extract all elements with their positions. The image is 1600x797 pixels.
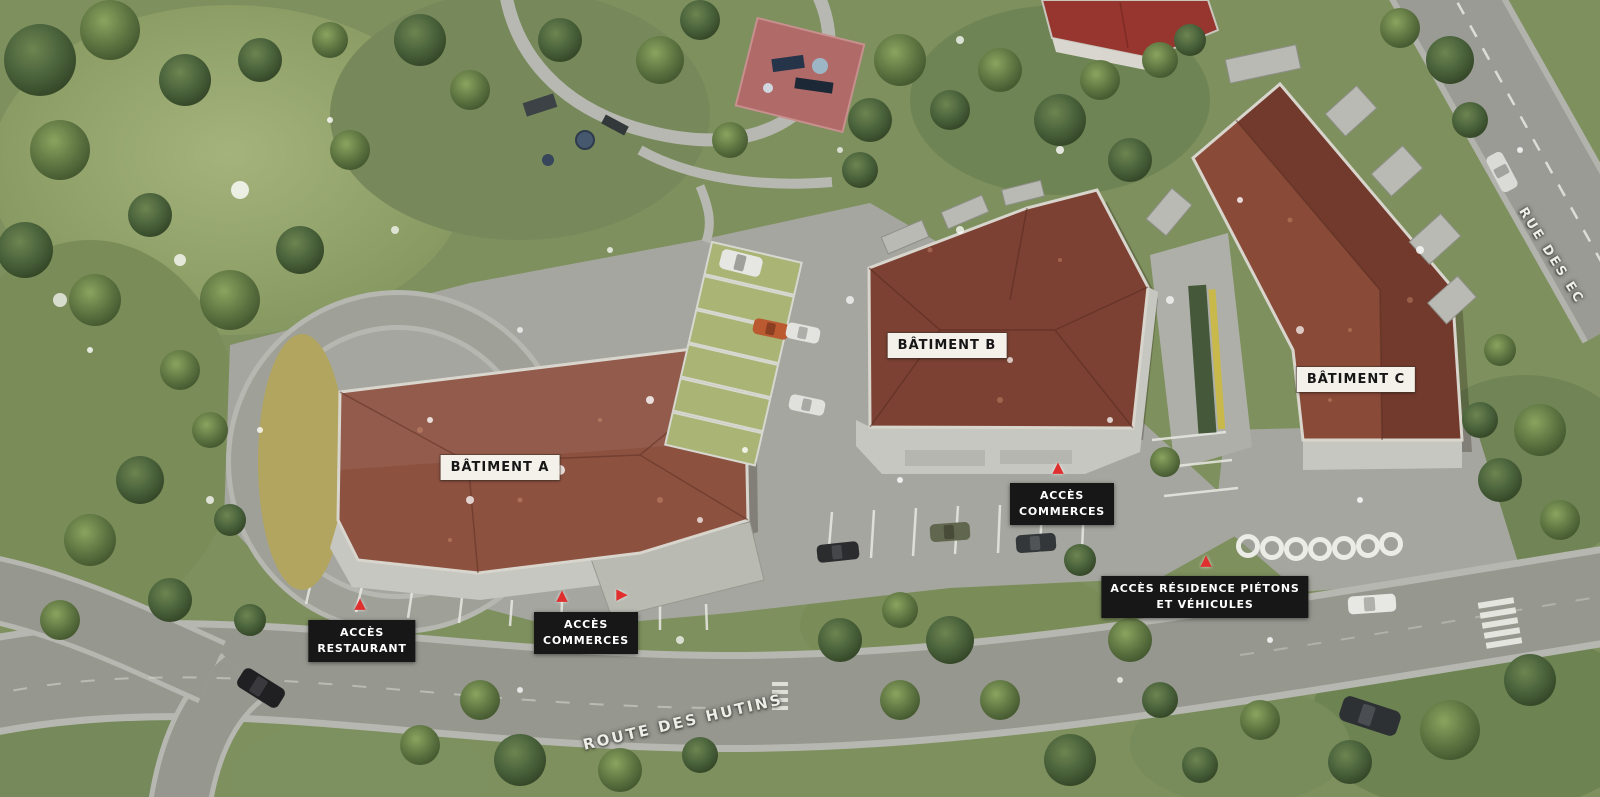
access-commerces-east-line1: ACCÈS [1019,488,1105,504]
access-commerces-east-marker-icon: ▲ [1052,460,1064,475]
access-residence-marker-icon: ▲ [1200,553,1212,568]
access-residence-label: ACCÈS RÉSIDENCE PIÉTONS ET VÉHICULES [1101,576,1308,618]
access-restaurant-label: ACCÈS RESTAURANT [308,620,415,662]
access-commerces-east-label: ACCÈS COMMERCES [1010,483,1114,525]
access-residence-line2: ET VÉHICULES [1110,597,1299,613]
access-restaurant-line1: ACCÈS [317,625,406,641]
access-commerces-west-line1: ACCÈS [543,617,629,633]
building-b-label: BÂTIMENT B [888,333,1007,358]
access-commerces-west-marker-side-icon: ▶ [616,587,628,602]
access-commerces-west-label: ACCÈS COMMERCES [534,612,638,654]
access-commerces-east-line2: COMMERCES [1019,504,1105,520]
access-restaurant-marker-icon: ▲ [354,596,366,611]
access-commerces-west-marker-icon: ▲ [556,588,568,603]
building-a-label: BÂTIMENT A [441,455,560,480]
aerial-render-artwork [0,0,1600,797]
site-plan-rendering: BÂTIMENT A BÂTIMENT B BÂTIMENT C ▲ ACCÈS… [0,0,1600,797]
access-restaurant-line2: RESTAURANT [317,641,406,657]
access-commerces-west-line2: COMMERCES [543,633,629,649]
access-residence-line1: ACCÈS RÉSIDENCE PIÉTONS [1110,581,1299,597]
building-c-label: BÂTIMENT C [1297,367,1415,392]
